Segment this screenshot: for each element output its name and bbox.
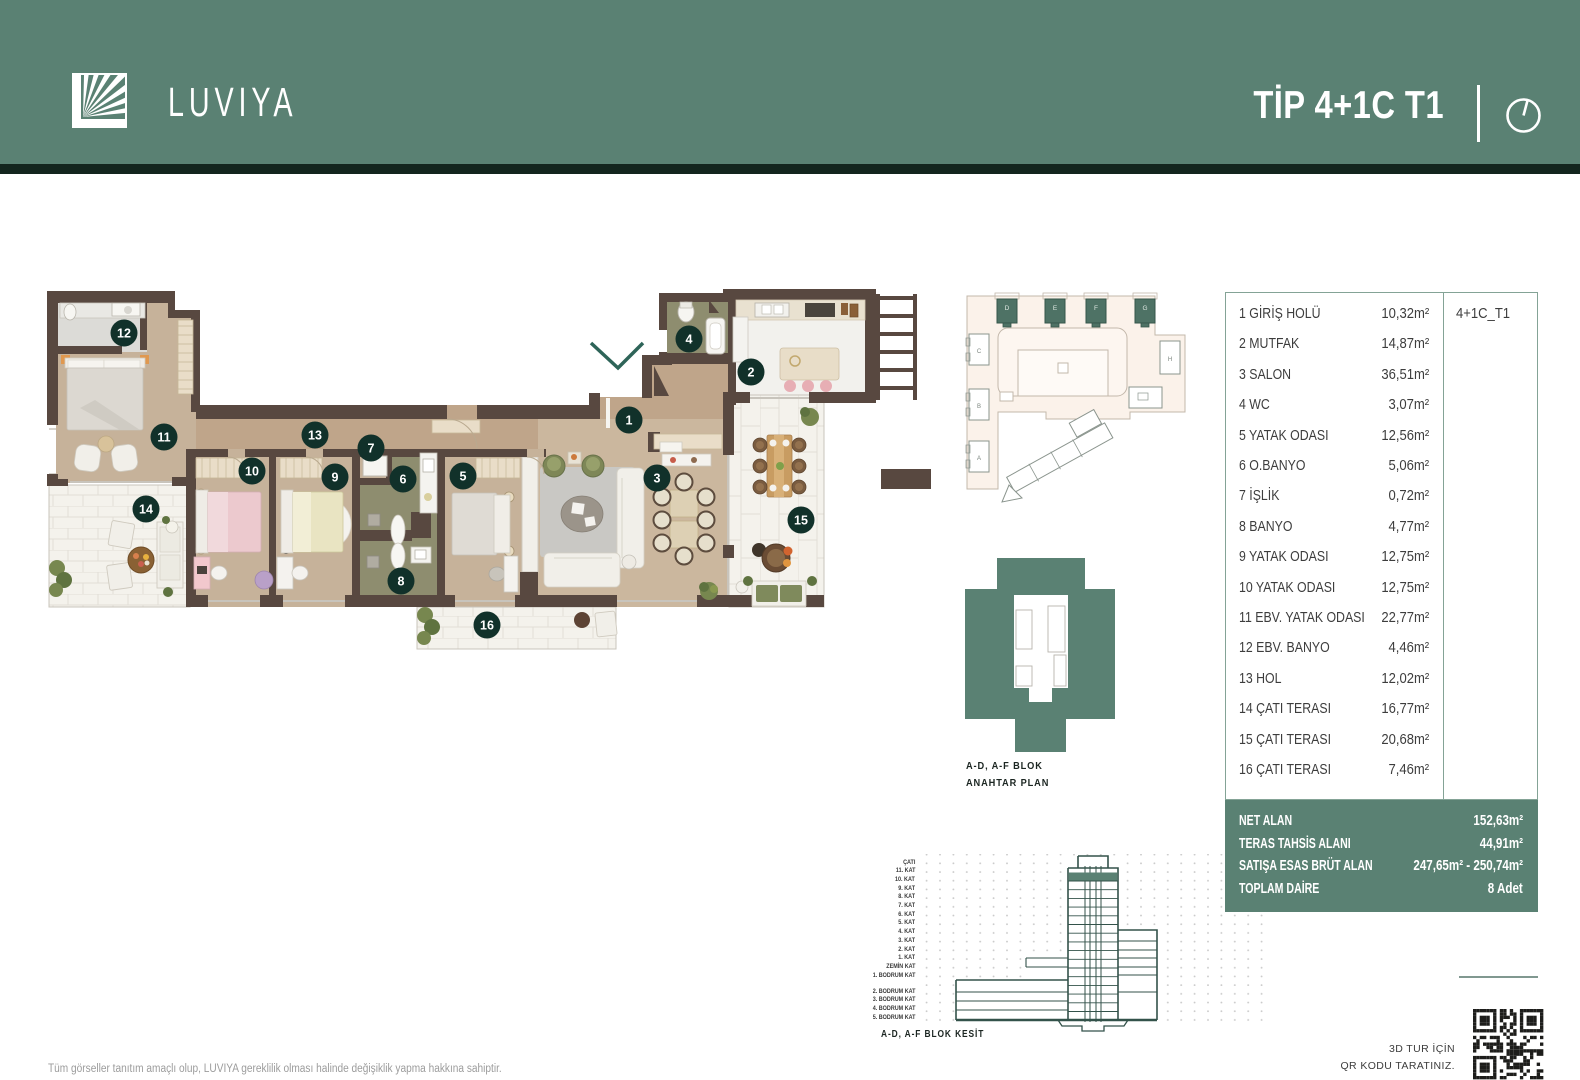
svg-text:2: 2	[748, 366, 755, 380]
svg-text:4: 4	[686, 333, 693, 347]
svg-text:6: 6	[400, 473, 407, 487]
svg-text:12: 12	[117, 327, 131, 341]
svg-text:E: E	[1053, 305, 1058, 312]
svg-text:16: 16	[480, 619, 494, 633]
svg-text:5: 5	[460, 470, 467, 484]
svg-text:A: A	[977, 456, 981, 462]
svg-text:10: 10	[245, 465, 259, 479]
svg-text:14: 14	[139, 503, 153, 517]
svg-text:1: 1	[626, 414, 633, 428]
svg-text:3: 3	[654, 472, 661, 486]
svg-text:15: 15	[794, 514, 808, 528]
svg-text:F: F	[1094, 305, 1098, 312]
svg-text:7: 7	[368, 442, 375, 456]
svg-text:11: 11	[157, 431, 170, 445]
svg-text:H: H	[1168, 357, 1172, 363]
svg-text:D: D	[1005, 305, 1010, 312]
svg-text:C: C	[977, 349, 982, 355]
svg-text:13: 13	[308, 429, 322, 443]
svg-text:9: 9	[332, 471, 339, 485]
svg-text:B: B	[977, 404, 981, 410]
svg-text:G: G	[1142, 305, 1147, 312]
svg-text:8: 8	[398, 575, 405, 589]
